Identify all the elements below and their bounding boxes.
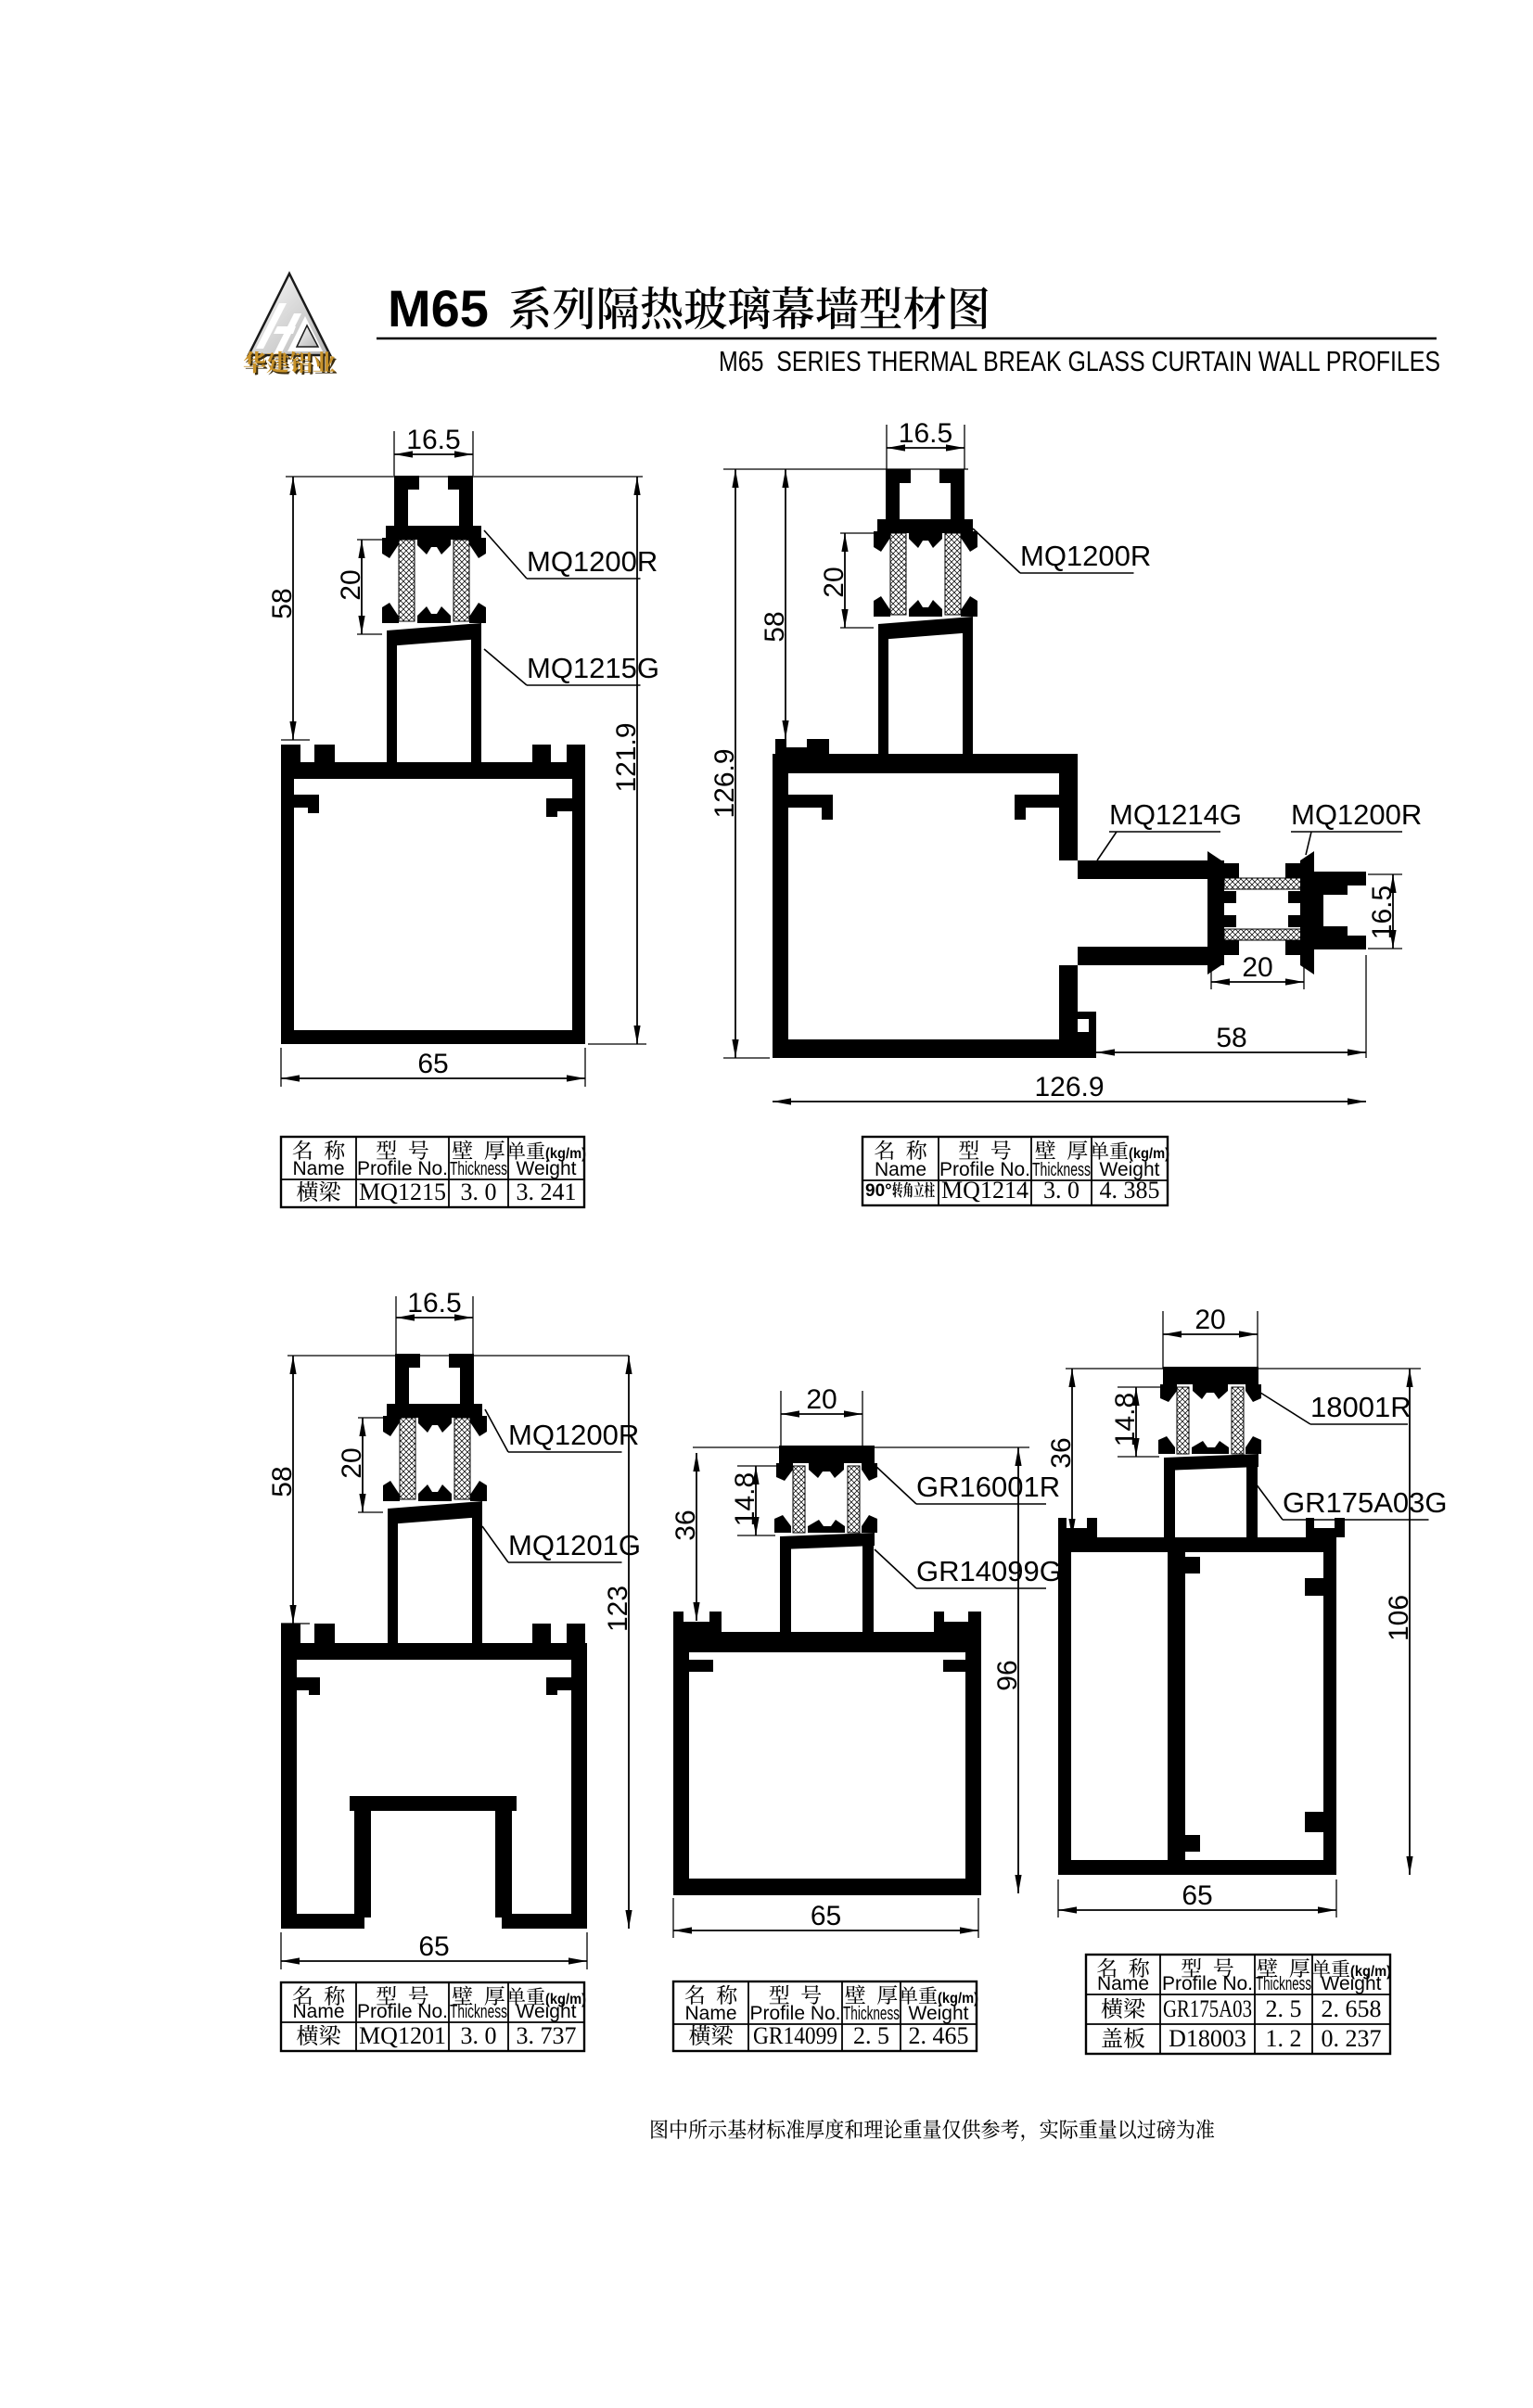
svg-text:1. 2: 1. 2: [1266, 2025, 1302, 2052]
svg-text:96: 96: [992, 1660, 1023, 1690]
svg-text:3. 0: 3. 0: [461, 1179, 497, 1205]
svg-text:2. 658: 2. 658: [1322, 1995, 1382, 2022]
svg-text:3. 241: 3. 241: [517, 1179, 577, 1205]
svg-text:58: 58: [267, 1466, 298, 1497]
svg-text:M65 SERIES THERMAL BREAK GLAS: M65 SERIES THERMAL BREAK GLASS CURTAIN W…: [719, 345, 1440, 377]
svg-text:16.5: 16.5: [406, 425, 460, 455]
svg-text:2. 5: 2. 5: [1266, 1995, 1302, 2022]
svg-text:Name: Name: [292, 1158, 344, 1179]
svg-text:Weight: Weight: [909, 2003, 969, 2024]
svg-text:Thickness: Thickness: [450, 1159, 507, 1179]
svg-text:20: 20: [819, 567, 850, 597]
svg-text:65: 65: [417, 1049, 448, 1079]
svg-text:Profile No.: Profile No.: [1162, 1973, 1253, 1994]
svg-text:GR16001R: GR16001R: [916, 1471, 1060, 1503]
svg-text:Name: Name: [875, 1159, 926, 1180]
svg-text:65: 65: [418, 1931, 449, 1962]
svg-text:MQ1214: MQ1214: [941, 1177, 1028, 1204]
svg-text:Weight: Weight: [517, 2001, 577, 2022]
svg-text:M65: M65: [388, 279, 489, 338]
svg-text:MQ1214G: MQ1214G: [1109, 798, 1242, 831]
svg-text:Name: Name: [1097, 1973, 1149, 1994]
svg-text:MQ1201G: MQ1201G: [508, 1529, 641, 1561]
svg-text:0. 237: 0. 237: [1322, 2025, 1382, 2052]
svg-text:20: 20: [806, 1384, 837, 1415]
svg-text:Profile No.: Profile No.: [357, 1158, 448, 1179]
svg-text:3. 0: 3. 0: [461, 2022, 497, 2049]
svg-text:58: 58: [760, 611, 790, 642]
svg-text:GR175A03: GR175A03: [1163, 1995, 1252, 2022]
svg-text:Profile No.: Profile No.: [749, 2003, 840, 2024]
svg-text:2. 5: 2. 5: [853, 2022, 889, 2049]
svg-text:GR14099G: GR14099G: [916, 1555, 1062, 1587]
svg-text:14.8: 14.8: [1110, 1393, 1141, 1446]
svg-text:36: 36: [671, 1510, 701, 1540]
svg-text:126.9: 126.9: [709, 748, 740, 818]
svg-text:MQ1215G: MQ1215G: [527, 652, 659, 684]
svg-text:16.5: 16.5: [1367, 885, 1398, 939]
svg-text:GR175A03G: GR175A03G: [1283, 1486, 1448, 1519]
svg-text:20: 20: [337, 1447, 367, 1478]
svg-text:20: 20: [1194, 1305, 1225, 1335]
svg-text:65: 65: [811, 1901, 841, 1931]
svg-text:MQ1201: MQ1201: [359, 2022, 446, 2049]
svg-text:MQ1200R: MQ1200R: [508, 1419, 639, 1451]
svg-text:20: 20: [336, 569, 366, 600]
svg-text:3. 0: 3. 0: [1043, 1177, 1079, 1204]
svg-text:2. 465: 2. 465: [909, 2022, 969, 2049]
svg-text:65: 65: [1182, 1880, 1212, 1911]
svg-text:Profile No.: Profile No.: [357, 2001, 448, 2022]
svg-text:14.8: 14.8: [730, 1472, 760, 1526]
svg-text:3. 737: 3. 737: [517, 2022, 577, 2049]
svg-text:Weight: Weight: [1322, 1973, 1382, 1994]
svg-text:MQ1200R: MQ1200R: [1291, 798, 1422, 831]
svg-text:Name: Name: [684, 2003, 736, 2024]
svg-text:4. 385: 4. 385: [1100, 1177, 1160, 1204]
svg-text:GR14099: GR14099: [753, 2022, 837, 2049]
svg-text:Name: Name: [292, 2001, 344, 2022]
svg-text:36: 36: [1046, 1437, 1077, 1468]
svg-text:126.9: 126.9: [1034, 1072, 1104, 1102]
svg-text:121.9: 121.9: [611, 722, 642, 792]
svg-text:58: 58: [267, 588, 298, 618]
svg-text:Thickness: Thickness: [450, 2002, 507, 2022]
svg-text:16.5: 16.5: [407, 1288, 461, 1319]
svg-text:106: 106: [1384, 1595, 1414, 1641]
svg-text:D18003: D18003: [1169, 2025, 1246, 2052]
svg-text:MQ1200R: MQ1200R: [1020, 540, 1151, 572]
svg-text:16.5: 16.5: [899, 418, 952, 449]
svg-text:90°: 90°: [865, 1181, 892, 1201]
svg-text:Thickness: Thickness: [1256, 1974, 1311, 1994]
svg-text:18001R: 18001R: [1310, 1391, 1412, 1423]
svg-text:MQ1200R: MQ1200R: [527, 545, 658, 578]
svg-text:20: 20: [1242, 952, 1272, 983]
svg-text:MQ1215: MQ1215: [359, 1179, 446, 1205]
svg-text:123: 123: [603, 1586, 633, 1632]
svg-text:58: 58: [1216, 1023, 1246, 1053]
svg-text:Weight: Weight: [517, 1158, 577, 1179]
svg-text:Thickness: Thickness: [843, 2004, 900, 2024]
